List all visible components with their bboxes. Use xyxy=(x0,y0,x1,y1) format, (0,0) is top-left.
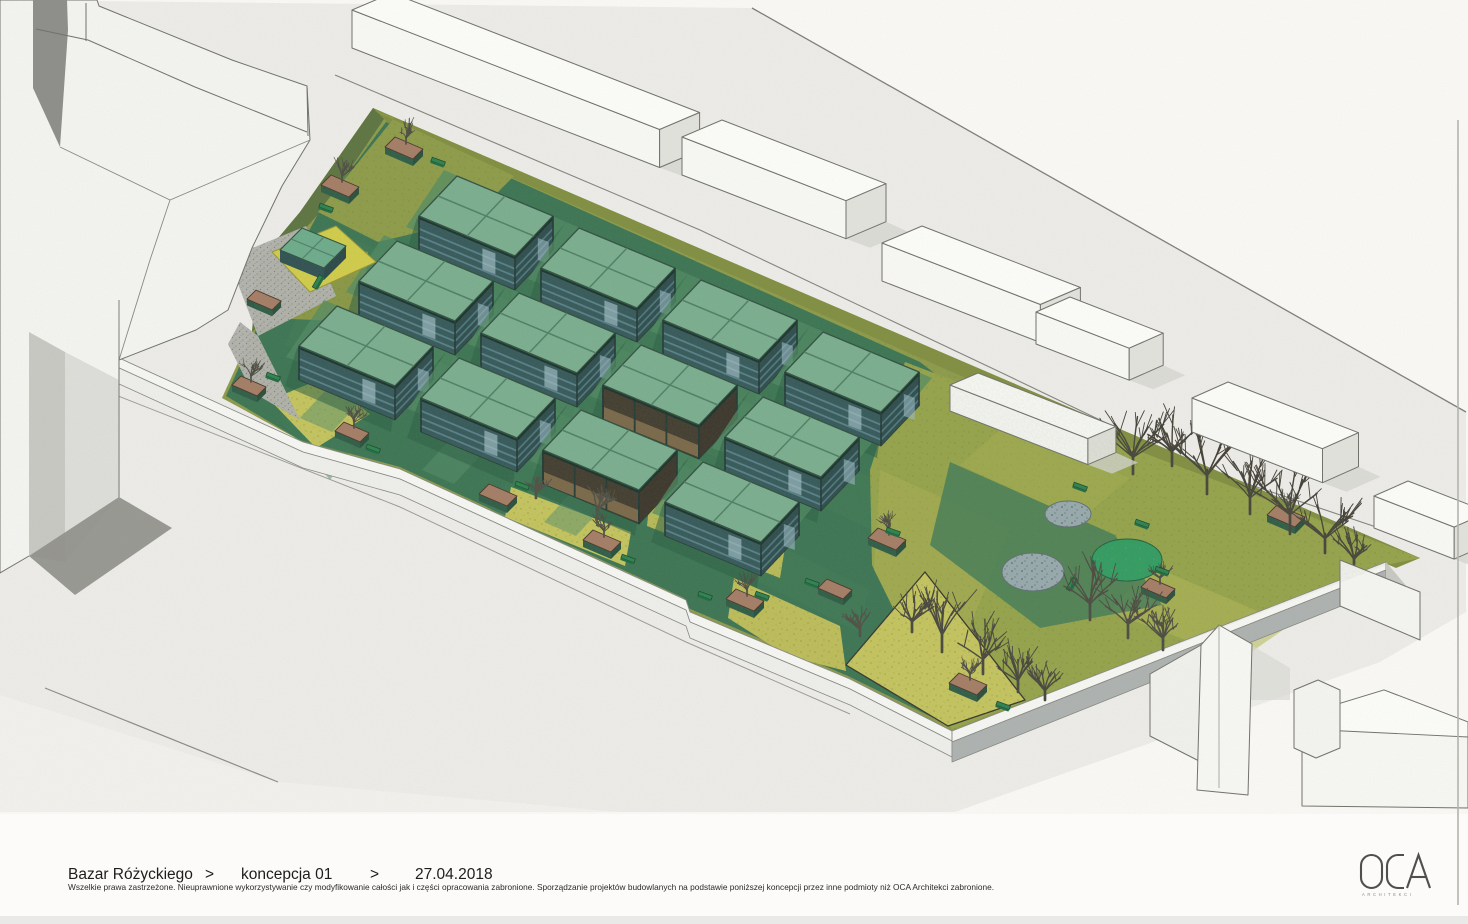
svg-text:>: > xyxy=(370,866,379,883)
svg-text:ARCHITEKCI: ARCHITEKCI xyxy=(1362,892,1413,897)
svg-text:27.04.2018: 27.04.2018 xyxy=(415,866,493,883)
svg-text:>: > xyxy=(205,866,214,883)
svg-text:koncepcja 01: koncepcja 01 xyxy=(241,866,332,883)
svg-text:Bazar Różyckiego: Bazar Różyckiego xyxy=(68,866,193,883)
svg-text:Wszelkie prawa zastrzeżone. Ni: Wszelkie prawa zastrzeżone. Nieuprawnion… xyxy=(68,882,994,892)
